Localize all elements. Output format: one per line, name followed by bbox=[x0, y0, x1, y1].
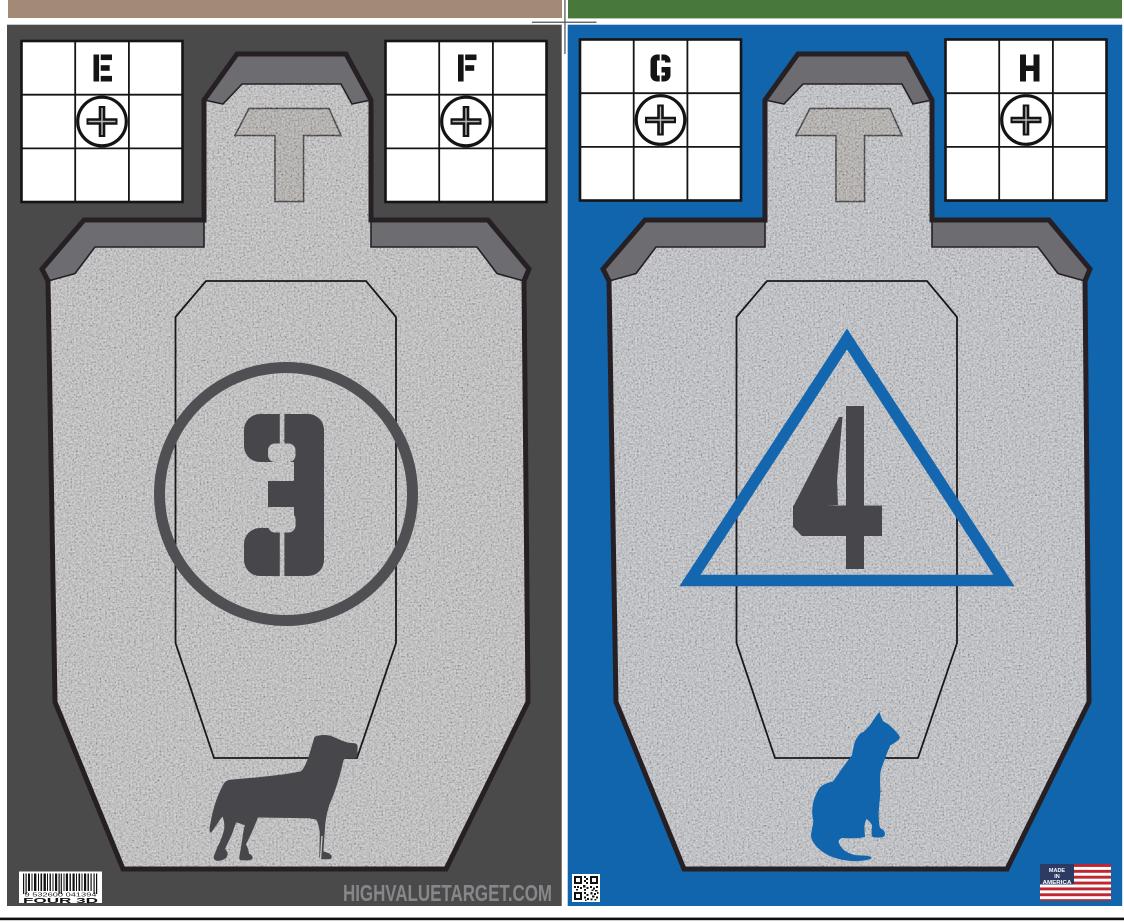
svg-text:HIGHVALUETARGET.COM: HIGHVALUETARGET.COM bbox=[343, 880, 552, 906]
svg-text:AMERICA: AMERICA bbox=[1043, 880, 1072, 886]
svg-text:FOUR 3D: FOUR 3D bbox=[23, 896, 98, 905]
